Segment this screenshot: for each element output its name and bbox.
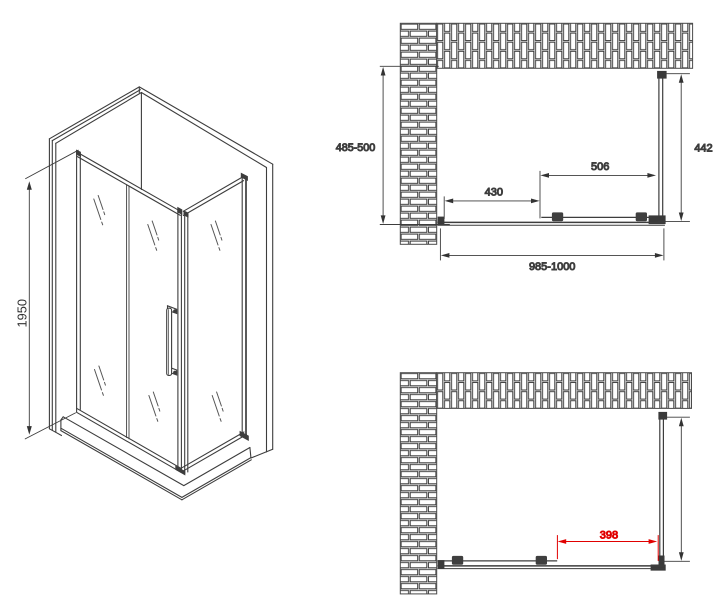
svg-text:398: 398 [600,529,618,541]
svg-text:430: 430 [485,187,503,199]
svg-text:506: 506 [591,161,609,173]
svg-text:485-500: 485-500 [336,142,376,154]
svg-text:442: 442 [694,142,712,154]
svg-text:985-1000: 985-1000 [529,261,576,273]
svg-text:1950: 1950 [15,299,30,327]
